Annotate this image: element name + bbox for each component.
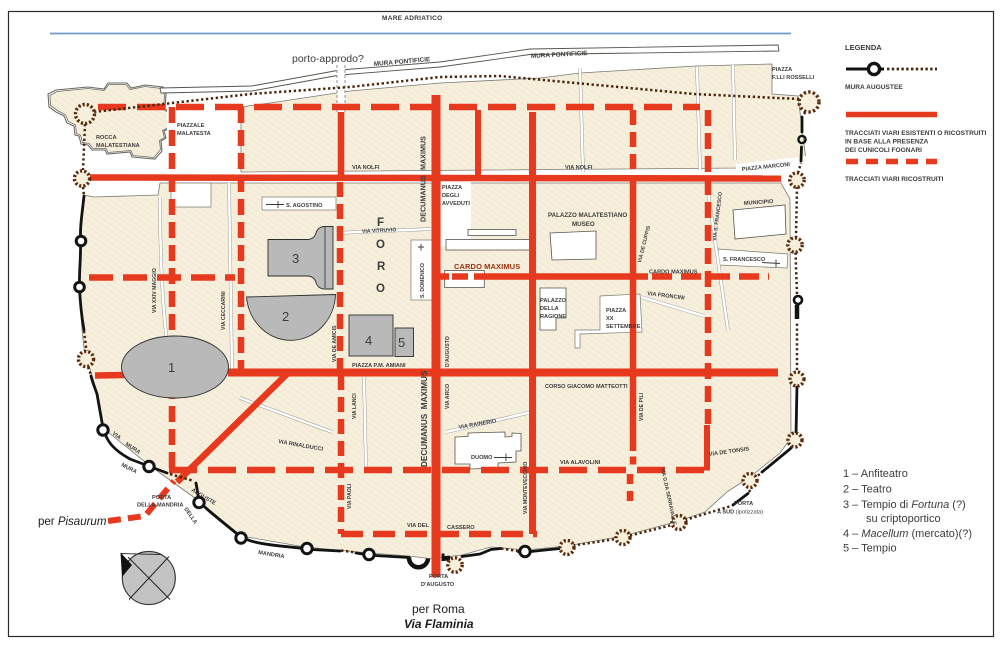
- svg-text:MUSEO: MUSEO: [572, 221, 595, 228]
- svg-text:porto-approdo?: porto-approdo?: [292, 53, 364, 65]
- svg-text:F.LLI ROSSELLI: F.LLI ROSSELLI: [772, 75, 815, 81]
- svg-text:Via Flaminia: Via Flaminia: [404, 617, 474, 631]
- svg-text:MAXIMUS: MAXIMUS: [419, 136, 428, 170]
- svg-text:S. AGOSTINO: S. AGOSTINO: [286, 203, 323, 209]
- svg-text:VIA NOLFI: VIA NOLFI: [565, 165, 593, 171]
- svg-text:VIA NOLFI: VIA NOLFI: [352, 165, 380, 171]
- svg-text:PALAZZO MALATESTIANO: PALAZZO MALATESTIANO: [548, 212, 627, 219]
- svg-text:VIA DE PILI: VIA DE PILI: [639, 392, 645, 421]
- svg-text:RAGIONE: RAGIONE: [540, 314, 566, 320]
- svg-text:per Roma: per Roma: [412, 602, 465, 616]
- svg-text:MALATESTA: MALATESTA: [177, 131, 211, 137]
- svg-text:2 – Teatro: 2 – Teatro: [843, 484, 892, 496]
- svg-text:DELLA MANDRIA: DELLA MANDRIA: [137, 503, 183, 509]
- svg-text:VIA PAOLI: VIA PAOLI: [347, 483, 353, 509]
- svg-text:PIAZZA P.M. AMIANI: PIAZZA P.M. AMIANI: [352, 363, 406, 369]
- svg-text:CORSO GIACOMO MATTEOTTI: CORSO GIACOMO MATTEOTTI: [545, 384, 628, 390]
- svg-text:VIA ARCO: VIA ARCO: [445, 384, 451, 409]
- svg-text:VIA XXIV MAGGIO: VIA XXIV MAGGIO: [152, 268, 158, 313]
- svg-text:1 – Anfiteatro: 1 – Anfiteatro: [843, 468, 908, 480]
- svg-text:PIAZZA: PIAZZA: [772, 67, 792, 73]
- svg-text:DECUMANUS: DECUMANUS: [419, 175, 428, 222]
- svg-text:XX: XX: [606, 316, 614, 322]
- svg-text:F: F: [377, 217, 384, 229]
- svg-text:PALAZZO: PALAZZO: [540, 298, 567, 304]
- svg-text:PORTA: PORTA: [429, 574, 448, 580]
- svg-text:2: 2: [282, 309, 289, 324]
- svg-text:VIA CECCARINI: VIA CECCARINI: [221, 291, 227, 330]
- svg-text:MARE ADRIATICO: MARE ADRIATICO: [382, 15, 443, 22]
- svg-text:5: 5: [398, 335, 405, 350]
- svg-text:LEGENDA: LEGENDA: [845, 43, 882, 52]
- svg-text:DELLA: DELLA: [540, 306, 559, 312]
- svg-text:CARDO MAXIMUS: CARDO MAXIMUS: [454, 262, 520, 271]
- svg-text:A SUD (ipotizzata): A SUD (ipotizzata): [717, 510, 763, 516]
- svg-text:5 – Tempio: 5 – Tempio: [843, 543, 897, 555]
- svg-text:DEI CUNICOLI FOGNARI: DEI CUNICOLI FOGNARI: [845, 147, 922, 154]
- svg-text:3: 3: [292, 251, 299, 266]
- svg-text:VIA DEL: VIA DEL: [407, 523, 429, 529]
- svg-text:O: O: [376, 239, 385, 251]
- svg-text:TRACCIATI VIARI ESISTENTI O RI: TRACCIATI VIARI ESISTENTI O RICOSTRUITI: [845, 130, 986, 137]
- svg-text:per Pisaurum: per Pisaurum: [38, 516, 107, 528]
- svg-text:O: O: [376, 283, 385, 295]
- svg-text:PIAZZA: PIAZZA: [606, 308, 626, 314]
- svg-text:4: 4: [365, 333, 372, 348]
- svg-text:VIA ALAVOLINI: VIA ALAVOLINI: [560, 460, 601, 466]
- svg-text:IN BASE ALLA PRESENZA: IN BASE ALLA PRESENZA: [845, 139, 929, 146]
- svg-text:DUOMO: DUOMO: [471, 455, 493, 461]
- svg-text:1: 1: [168, 360, 175, 375]
- svg-text:D'AUGUSTO: D'AUGUSTO: [421, 582, 455, 588]
- svg-text:VIA LANCI: VIA LANCI: [352, 393, 358, 419]
- svg-text:PIAZZA: PIAZZA: [442, 185, 462, 191]
- svg-text:MURA AUGUSTEE: MURA AUGUSTEE: [845, 84, 903, 91]
- svg-text:DEGLI: DEGLI: [442, 193, 460, 199]
- svg-text:VIA DE AMICIS: VIA DE AMICIS: [332, 325, 338, 362]
- svg-text:PORTA: PORTA: [152, 495, 171, 501]
- svg-text:4 – Macellum (mercato)(?): 4 – Macellum (mercato)(?): [843, 528, 972, 540]
- svg-text:PIAZZALE: PIAZZALE: [177, 123, 205, 129]
- svg-text:CARDO MAXIMUS: CARDO MAXIMUS: [649, 270, 698, 276]
- svg-text:D'AUGUSTO: D'AUGUSTO: [445, 336, 451, 367]
- svg-text:AVVEDUTI: AVVEDUTI: [442, 201, 470, 207]
- svg-text:su criptoportico: su criptoportico: [866, 513, 941, 525]
- svg-text:DECUMANUS MAXIMUS: DECUMANUS MAXIMUS: [420, 370, 429, 467]
- svg-text:3 – Tempio di Fortuna (?): 3 – Tempio di Fortuna (?): [843, 499, 966, 511]
- svg-text:TRACCIATI VIARI RICOSTRUITI: TRACCIATI VIARI RICOSTRUITI: [845, 176, 944, 183]
- svg-text:ROCCA: ROCCA: [96, 135, 117, 141]
- svg-text:S. FRANCESCO: S. FRANCESCO: [723, 257, 766, 263]
- svg-text:VIA MONTEVECCHIO: VIA MONTEVECCHIO: [523, 462, 529, 514]
- svg-text:CASSERO: CASSERO: [447, 525, 475, 531]
- svg-text:SETTEMBRE: SETTEMBRE: [606, 324, 641, 330]
- svg-text:MALATESTIANA: MALATESTIANA: [96, 143, 140, 149]
- svg-text:S. DOMENICO: S. DOMENICO: [420, 263, 426, 298]
- svg-text:PORTA: PORTA: [734, 501, 753, 507]
- svg-text:R: R: [377, 261, 386, 273]
